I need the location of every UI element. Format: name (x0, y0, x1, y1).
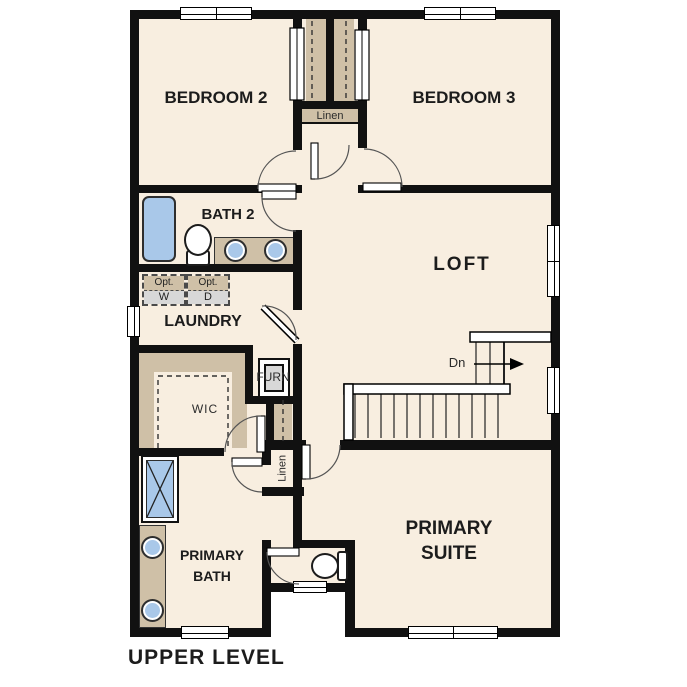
door-leaf-wic (257, 416, 265, 452)
label-loft: LOFT (402, 254, 522, 276)
door-leaf-linen-upper (311, 143, 318, 179)
door-leaf-bedroom3 (363, 183, 401, 191)
line-art-overlay (0, 0, 687, 687)
stair-rail (344, 384, 510, 394)
label-linen-upper: Linen (302, 110, 358, 123)
door-leaf-bath2 (262, 191, 296, 199)
label-furnace: FURN (252, 371, 294, 385)
closet-door-bedroom2 (290, 28, 304, 100)
label-bath2: BATH 2 (178, 206, 278, 223)
label-bedroom3: BEDROOM 3 (389, 88, 539, 108)
door-arc-water-closet (267, 552, 299, 584)
door-arc-primary-suite (306, 445, 340, 479)
label-laundry: LAUNDRY (143, 313, 263, 331)
label-stairs-down: Dn (442, 356, 472, 371)
door-leaf-laundry (263, 307, 297, 341)
stairs-down-arrow (474, 358, 524, 370)
closet-door-bedroom3 (355, 30, 369, 100)
label-linen-lower: Linen (277, 447, 290, 489)
stair-rail-return (344, 384, 353, 440)
door-leaf-primary-bath (232, 458, 262, 466)
door-leaves (232, 143, 401, 556)
door-arc-bedroom3 (364, 149, 402, 187)
label-bedroom2: BEDROOM 2 (141, 88, 291, 108)
label-primary-bath: PRIMARY BATH (171, 545, 253, 587)
page-title: UPPER LEVEL (128, 646, 348, 670)
door-arc-wic (225, 416, 261, 452)
label-wic: WIC (175, 403, 235, 417)
door-arc-linen-upper (315, 145, 349, 179)
staircase (344, 332, 551, 440)
door-leaf-water-closet (267, 548, 299, 556)
label-primary-suite: PRIMARY SUITE (389, 516, 509, 566)
door-leaf-primary-suite (302, 445, 310, 479)
door-arc-bedroom2 (258, 151, 296, 189)
shower-x (147, 461, 173, 517)
floor-plan: Opt. W Opt. D (0, 0, 687, 687)
stair-landing-rail (470, 332, 551, 342)
